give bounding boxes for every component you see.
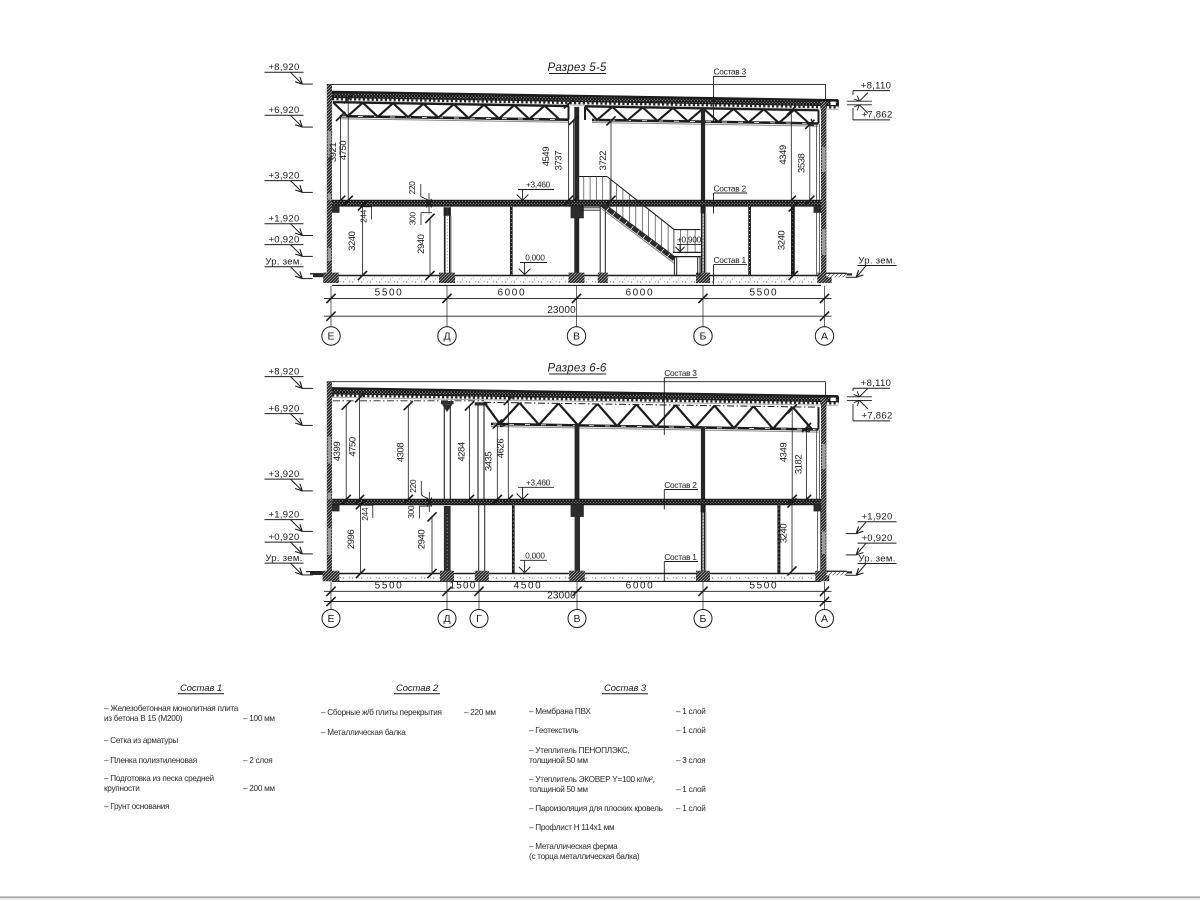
svg-text:Д: Д — [443, 613, 450, 625]
svg-text:В: В — [573, 613, 580, 625]
svg-text:– Утеплитель ПЕНОПЛЭКС,: – Утеплитель ПЕНОПЛЭКС, — [529, 746, 629, 755]
svg-text:– Металлическая балка: – Металлическая балка — [321, 728, 406, 737]
svg-text:Состав 3: Состав 3 — [664, 368, 697, 378]
svg-text:Состав 1: Состав 1 — [664, 552, 697, 562]
svg-text:2940: 2940 — [416, 530, 427, 550]
svg-text:+0,920: +0,920 — [861, 533, 892, 544]
svg-text:4500: 4500 — [514, 580, 543, 591]
svg-text:+8,920: +8,920 — [268, 62, 299, 73]
svg-text:Е: Е — [327, 613, 334, 625]
svg-text:+8,110: +8,110 — [861, 378, 891, 389]
svg-text:– 220 мм: – 220 мм — [464, 708, 496, 717]
svg-text:Состав 3: Состав 3 — [604, 683, 647, 694]
svg-text:Разрез 5-5: Разрез 5-5 — [548, 62, 607, 74]
svg-text:крупности: крупности — [104, 784, 140, 793]
svg-text:3538: 3538 — [797, 153, 808, 173]
svg-text:1500: 1500 — [449, 580, 476, 591]
svg-text:– 2 слоя: – 2 слоя — [243, 756, 272, 765]
svg-text:300: 300 — [406, 505, 416, 519]
svg-text:Д: Д — [443, 331, 450, 343]
svg-text:6000: 6000 — [497, 287, 526, 298]
svg-text:Б: Б — [700, 331, 707, 343]
svg-text:6000: 6000 — [625, 287, 654, 298]
svg-text:+1,920: +1,920 — [268, 509, 299, 520]
svg-text:2996: 2996 — [346, 530, 357, 550]
svg-text:3240: 3240 — [777, 231, 788, 251]
svg-text:4349: 4349 — [779, 443, 790, 463]
svg-text:+1,920: +1,920 — [861, 512, 892, 523]
svg-text:23000: 23000 — [547, 305, 576, 316]
svg-text:Состав 2: Состав 2 — [664, 480, 697, 490]
svg-text:4349: 4349 — [778, 145, 789, 165]
svg-text:– Подготовка из песка средней: – Подготовка из песка средней — [104, 774, 214, 783]
svg-text:244: 244 — [359, 209, 369, 223]
svg-text:– Утеплитель ЭКОВЕР Y=100 кг/м: – Утеплитель ЭКОВЕР Y=100 кг/м², — [529, 775, 655, 784]
svg-text:4308: 4308 — [396, 443, 407, 463]
svg-text:– 100 мм: – 100 мм — [243, 714, 275, 723]
svg-text:+3,920: +3,920 — [268, 469, 299, 480]
svg-text:– Железобетонная монолитная п: – Железобетонная монолитная плита — [104, 704, 239, 713]
svg-text:Состав 3: Состав 3 — [714, 67, 747, 77]
svg-text:Г: Г — [476, 613, 482, 625]
svg-text:– 1 слой: – 1 слой — [676, 804, 706, 813]
svg-text:– Профлист Н 114х1 мм: – Профлист Н 114х1 мм — [529, 823, 615, 832]
svg-text:4399: 4399 — [332, 442, 343, 462]
svg-text:толщиной 50 мм: толщиной 50 мм — [529, 756, 588, 765]
svg-text:Разрез 6-6: Разрез 6-6 — [548, 363, 607, 375]
svg-text:+7,862: +7,862 — [861, 411, 892, 422]
svg-text:Состав 1: Состав 1 — [180, 683, 222, 694]
svg-text:244: 244 — [360, 507, 370, 521]
svg-text:– 1 слой: – 1 слой — [676, 785, 706, 794]
svg-text:А: А — [821, 331, 828, 343]
svg-text:Ур. зем.: Ур. зем. — [858, 553, 895, 564]
svg-text:– Мембрана ПВХ: – Мембрана ПВХ — [529, 707, 591, 716]
svg-text:+7,862: +7,862 — [861, 110, 892, 121]
svg-text:– 200 мм: – 200 мм — [243, 784, 275, 793]
svg-text:3737: 3737 — [553, 151, 564, 171]
svg-text:+6,920: +6,920 — [268, 403, 299, 414]
svg-text:+3,920: +3,920 — [268, 170, 299, 181]
svg-text:– 3 слоя: – 3 слоя — [676, 756, 705, 765]
svg-text:+0,920: +0,920 — [268, 532, 299, 543]
svg-text:– 1 слой: – 1 слой — [676, 707, 706, 716]
svg-text:3182: 3182 — [794, 455, 805, 475]
svg-text:+8,110: +8,110 — [861, 81, 891, 92]
svg-text:0,000: 0,000 — [525, 254, 545, 263]
svg-text:+0,920: +0,920 — [268, 234, 299, 245]
svg-text:5500: 5500 — [749, 287, 778, 298]
svg-text:(с торца металлическая балка): (с торца металлическая балка) — [529, 852, 640, 861]
svg-text:23000: 23000 — [547, 591, 576, 602]
svg-text:из бетона В 15 (М200): из бетона В 15 (М200) — [104, 714, 183, 723]
svg-text:Е: Е — [327, 331, 334, 343]
svg-text:– Пароизоляция для плоских кро: – Пароизоляция для плоских кровель — [529, 804, 663, 813]
svg-text:В: В — [573, 331, 580, 343]
svg-text:– 1 слой: – 1 слой — [676, 726, 706, 735]
svg-text:3240: 3240 — [779, 524, 790, 544]
svg-text:+3,460: +3,460 — [526, 181, 551, 190]
svg-text:220: 220 — [408, 479, 418, 493]
svg-text:– Сборные ж/б плиты перекрытия: – Сборные ж/б плиты перекрытия — [321, 708, 442, 717]
svg-text:Ур. зем.: Ур. зем. — [858, 255, 895, 266]
svg-text:5500: 5500 — [375, 287, 404, 298]
svg-text:2940: 2940 — [416, 234, 427, 254]
svg-text:Состав 2: Состав 2 — [396, 683, 439, 694]
svg-text:+6,920: +6,920 — [268, 105, 299, 116]
svg-text:Состав 2: Состав 2 — [714, 183, 747, 193]
svg-text:300: 300 — [408, 212, 418, 226]
svg-text:4750: 4750 — [347, 437, 358, 457]
svg-text:Б: Б — [700, 613, 707, 625]
svg-text:3435: 3435 — [484, 452, 495, 472]
svg-text:6000: 6000 — [626, 580, 655, 591]
svg-text:Состав 1: Состав 1 — [714, 255, 747, 265]
svg-text:+0,900: +0,900 — [677, 236, 702, 245]
svg-text:А: А — [821, 613, 828, 625]
svg-text:5500: 5500 — [749, 580, 778, 591]
svg-text:Ур. зем.: Ур. зем. — [265, 257, 302, 268]
svg-text:220: 220 — [407, 181, 417, 195]
svg-text:4750: 4750 — [338, 141, 349, 161]
svg-text:+3,460: +3,460 — [526, 479, 551, 488]
svg-text:3722: 3722 — [598, 151, 609, 171]
svg-text:– Металлическая ферма: – Металлическая ферма — [529, 842, 618, 851]
svg-text:– Геотекстиль: – Геотекстиль — [529, 726, 578, 735]
svg-text:0,000: 0,000 — [525, 552, 545, 561]
svg-text:– Грунт основания: – Грунт основания — [104, 802, 169, 811]
svg-text:3240: 3240 — [347, 231, 358, 251]
svg-text:– Пленка полиэтиленовая: – Пленка полиэтиленовая — [104, 756, 197, 765]
svg-text:– Сетка из арматуры: – Сетка из арматуры — [104, 736, 178, 745]
svg-text:5500: 5500 — [375, 580, 404, 591]
svg-text:+8,920: +8,920 — [268, 366, 299, 377]
svg-text:4549: 4549 — [541, 147, 552, 167]
svg-text:Ур. зем.: Ур. зем. — [265, 553, 302, 564]
svg-text:4626: 4626 — [495, 439, 506, 459]
svg-text:+1,920: +1,920 — [268, 214, 299, 225]
svg-text:толщиной 50 мм: толщиной 50 мм — [529, 785, 588, 794]
svg-text:4284: 4284 — [457, 442, 468, 462]
